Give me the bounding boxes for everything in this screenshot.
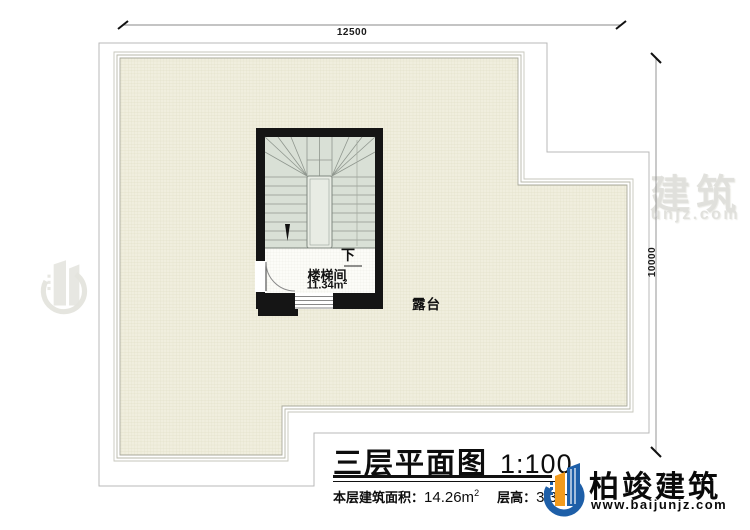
title-rule-thin — [333, 481, 560, 482]
company-logo-url: www.baijunjz.com — [591, 497, 727, 512]
dimension-top-label: 12500 — [330, 27, 374, 38]
title-rule-thick — [333, 475, 552, 478]
window-opening — [295, 293, 333, 309]
floor-height-label: 层高： — [497, 490, 536, 505]
door-opening — [255, 261, 266, 292]
floor-area-value: 14.26m2 — [424, 489, 479, 506]
company-logo-icon — [544, 458, 588, 522]
floor-plan-page: 柏竣建筑 www.baijunjz.com 柏竣建筑 www.baijunjz.… — [0, 0, 750, 530]
title-info-row: 本层建筑面积：14.26m2层高：3.3m — [333, 487, 569, 507]
stair-room-area-sup: 2 — [343, 279, 347, 286]
stair-room-area-value: 11.34m — [307, 280, 344, 292]
floor-area-label: 本层建筑面积： — [333, 490, 424, 505]
terrace-label: 露台 — [412, 293, 441, 313]
dimension-right-label: 10000 — [647, 240, 659, 284]
stair-direction-label: 下 — [341, 245, 355, 265]
stair-well — [307, 176, 332, 248]
stair-room-area: 11.34m2 — [296, 279, 358, 292]
